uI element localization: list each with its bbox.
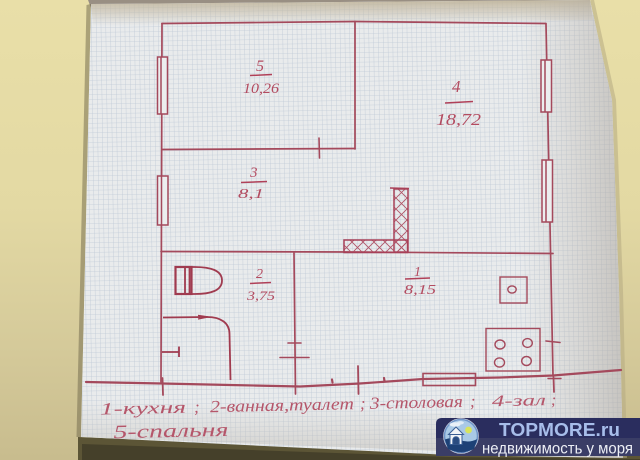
svg-text:3: 3: [249, 165, 258, 181]
svg-text:2: 2: [256, 267, 263, 282]
svg-text:4-зал: 4-зал: [492, 392, 546, 410]
svg-text:10,26: 10,26: [243, 81, 280, 97]
svg-text:;: ;: [360, 394, 366, 413]
svg-text:18,72: 18,72: [436, 110, 482, 129]
svg-text:;: ;: [470, 392, 476, 411]
svg-text:4: 4: [452, 77, 461, 96]
svg-text:TOPMORE.ru: TOPMORE.ru: [499, 420, 620, 440]
svg-text:недвижимость у моря: недвижимость у моря: [482, 441, 633, 458]
svg-text:3,75: 3,75: [246, 288, 276, 303]
svg-text:2-ванная,туалет: 2-ванная,туалет: [210, 394, 354, 416]
svg-text:5-спальня: 5-спальня: [113, 420, 228, 443]
svg-text:3-столовая: 3-столовая: [369, 392, 464, 413]
svg-text:5: 5: [256, 58, 264, 75]
svg-text:8,15: 8,15: [404, 283, 436, 298]
svg-text:8,1: 8,1: [238, 187, 264, 202]
svg-text:;: ;: [551, 392, 557, 409]
svg-text:;: ;: [194, 397, 200, 416]
svg-text:1-кухня: 1-кухня: [100, 398, 187, 419]
